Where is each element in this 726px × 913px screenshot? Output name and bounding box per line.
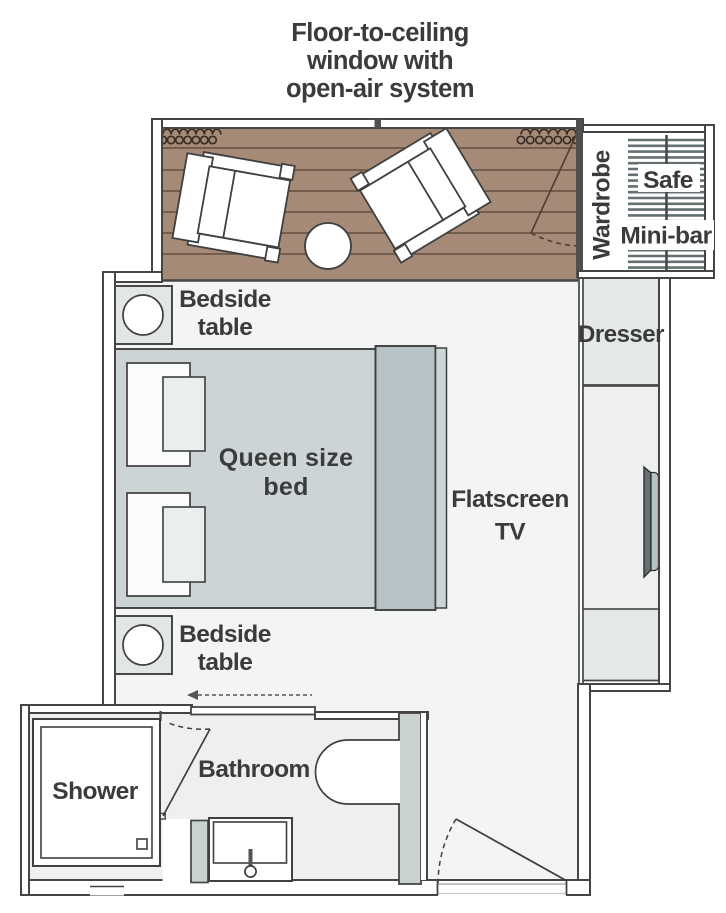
svg-text:window with: window with (306, 47, 453, 75)
svg-text:Wardrobe: Wardrobe (589, 150, 616, 259)
svg-text:Flatscreen: Flatscreen (451, 486, 569, 513)
svg-text:Bathroom: Bathroom (198, 756, 310, 783)
svg-text:Mini-bar: Mini-bar (620, 223, 712, 250)
svg-text:Bedside: Bedside (179, 621, 271, 648)
svg-text:Safe: Safe (643, 167, 693, 194)
svg-text:table: table (198, 314, 253, 341)
svg-text:TV: TV (495, 519, 526, 546)
svg-text:bed: bed (263, 473, 308, 501)
svg-text:Queen size: Queen size (219, 444, 354, 472)
svg-text:Dresser: Dresser (578, 321, 664, 348)
svg-text:open-air system: open-air system (286, 75, 474, 103)
svg-text:table: table (198, 649, 253, 676)
svg-text:Bedside: Bedside (179, 286, 271, 313)
svg-text:Floor-to-ceiling: Floor-to-ceiling (291, 19, 469, 47)
svg-text:Shower: Shower (52, 778, 138, 805)
